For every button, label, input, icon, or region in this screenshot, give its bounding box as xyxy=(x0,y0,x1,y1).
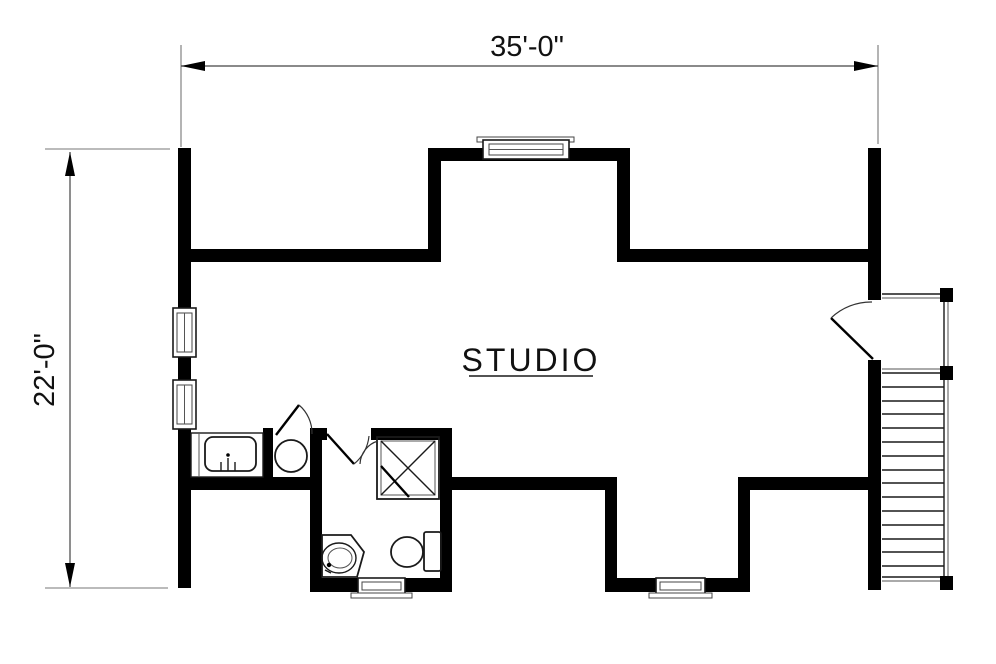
front-wall-left xyxy=(178,249,430,262)
left-window-2 xyxy=(173,380,196,429)
corner-vanity-sink xyxy=(322,535,364,577)
newel-post-mid xyxy=(940,366,953,380)
kitchen-area xyxy=(191,433,307,477)
newel-post-bottom xyxy=(940,576,953,590)
arrowhead-right xyxy=(854,61,878,71)
dimension-left: 22'-0" xyxy=(29,149,170,588)
arrowhead-up xyxy=(65,152,75,176)
entry-door xyxy=(831,302,873,359)
staircase xyxy=(882,288,953,590)
bathroom-area xyxy=(322,437,441,577)
dimension-top: 35'-0" xyxy=(181,31,878,147)
room-label: STUDIO xyxy=(462,342,601,378)
left-dimension-label: 22'-0" xyxy=(29,333,61,407)
bottom-wall-center xyxy=(440,477,617,490)
room-label-group: STUDIO xyxy=(462,342,601,378)
nook-partition-wall xyxy=(263,428,273,477)
dormer-left-wall xyxy=(428,148,441,262)
dormer-right-wall xyxy=(617,148,630,262)
water-heater xyxy=(275,440,307,472)
bumpout-left-wall xyxy=(605,477,617,592)
newel-post-top xyxy=(940,288,953,302)
bumpout-window xyxy=(649,578,712,598)
floor-plan-page: 35'-0" 22'-0" STUDIO xyxy=(0,0,996,664)
kitchen-sink xyxy=(205,437,256,471)
bottom-wall-right xyxy=(738,477,881,490)
right-wall-upper xyxy=(868,148,881,300)
floor-plan-canvas: 35'-0" 22'-0" STUDIO xyxy=(0,0,996,664)
stair-treads xyxy=(882,387,944,581)
doors xyxy=(276,302,873,464)
arrowhead-down xyxy=(65,563,75,587)
left-window-1 xyxy=(173,308,196,357)
top-dimension-label: 35'-0" xyxy=(490,31,564,63)
dormer-window xyxy=(477,137,574,159)
toilet xyxy=(391,532,441,571)
arrowhead-left xyxy=(181,61,205,71)
bottom-wall-left xyxy=(178,477,322,490)
bathroom-door xyxy=(327,434,369,464)
left-wall xyxy=(178,148,191,588)
nook-door xyxy=(276,405,312,435)
stair-landing xyxy=(882,294,949,581)
bathroom-left-wall xyxy=(310,428,322,592)
right-wall-lower xyxy=(868,360,881,590)
front-wall-right xyxy=(617,249,881,262)
bathroom-window xyxy=(351,578,412,598)
shower-stall xyxy=(360,437,439,499)
bumpout-right-wall xyxy=(738,477,750,592)
